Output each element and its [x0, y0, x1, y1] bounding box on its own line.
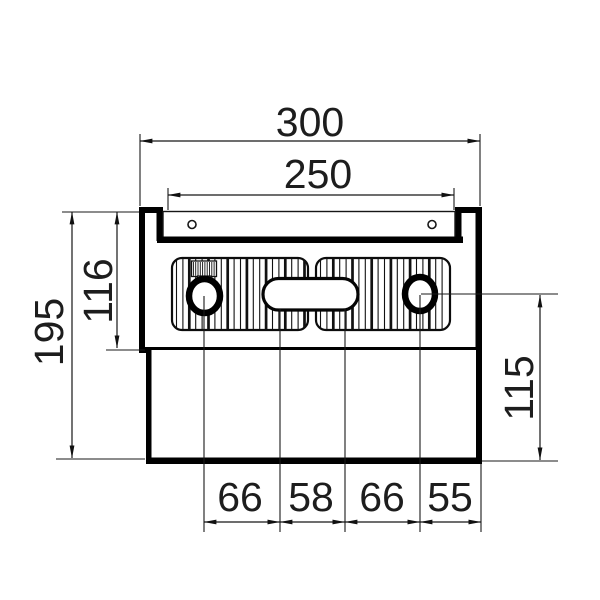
dimension-drawing-canvas: 300 250 195 116 115 66 58 66 55 [0, 0, 600, 600]
dim-label-segment-3: 66 [359, 474, 405, 520]
lower-box-left-wall [146, 350, 152, 463]
lower-box-right-wall [476, 350, 482, 463]
lower-box-bottom-wall [146, 458, 482, 465]
dim-label-segment-1: 66 [217, 474, 263, 520]
right-ear-inner-wall [455, 207, 462, 241]
dim-label-upper-height: 116 [75, 258, 121, 323]
casing-left-wall [139, 207, 145, 353]
mounting-plate [163, 212, 455, 239]
screw-hole-left [188, 221, 196, 229]
screw-hole-right [428, 221, 436, 229]
lower-box [146, 350, 482, 464]
mounting-plate-bottom-bar [157, 237, 463, 244]
dim-label-total-height: 195 [26, 298, 72, 366]
dim-label-segment-2: 58 [288, 474, 334, 520]
technical-drawing: 300 250 195 116 115 66 58 66 55 [0, 0, 600, 600]
dim-label-overall-width: 300 [276, 99, 344, 145]
left-ear-inner-wall [157, 207, 164, 241]
lower-box-fill [146, 350, 482, 463]
dim-label-plate-width: 250 [284, 151, 352, 197]
slot-opening [263, 279, 358, 311]
casing-right-wall [476, 207, 483, 353]
dim-label-lower-height: 115 [496, 355, 542, 420]
dim-label-segment-4: 55 [427, 474, 473, 520]
